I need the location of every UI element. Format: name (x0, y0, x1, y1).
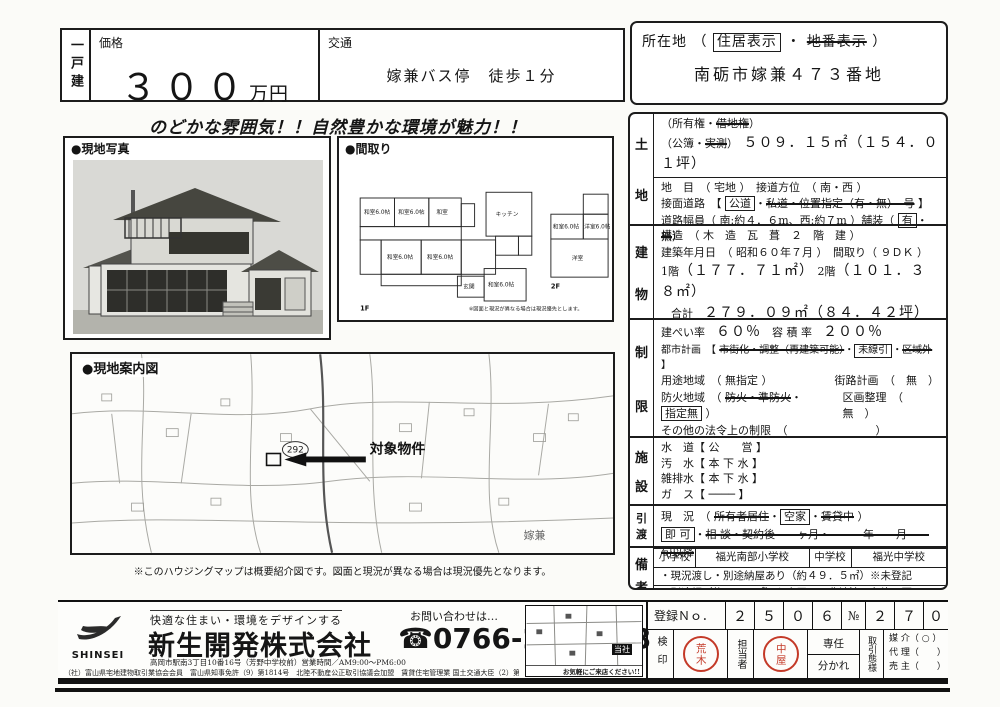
restrictions-header: 制 限 (630, 320, 654, 436)
restrictions-h1: 制 (635, 342, 648, 361)
handover-h2: 渡 (636, 526, 647, 542)
area-map-box: ●現地案内図 (70, 352, 615, 555)
facilities-h2: 設 (635, 476, 648, 495)
dairi-option: 代 理（ ） (889, 647, 946, 661)
company-logo: SHINSEI (66, 612, 130, 661)
city-plan-label: 都市計画 【 (661, 345, 716, 356)
timing-selected: 即 可 (661, 527, 695, 542)
status-selected: 空家 (780, 509, 810, 524)
facilities-section: 施 設 水 道【 公 営 】 汚 水【 本 下 水 】 雑排水【 本 下 水 】… (630, 436, 946, 504)
footer-band: SHINSEI 快適な住まい・環境をデザインする 新生開発株式会社 高岡市駅南3… (58, 600, 948, 684)
built-date: 建築年月日 （ 昭和６０年７月 ） 間取り（ ９ＤＫ ） (661, 245, 939, 262)
yoseki-label: 容 積 率 (772, 326, 812, 339)
transaction-type-label: 取引態様 (860, 630, 884, 678)
our-office-marker: 当社 (612, 644, 632, 655)
status-label: 現 況 （ (661, 510, 711, 523)
building-body: 構造 （ 木 造 瓦 葺 ２ 階 建 ） 建築年月日 （ 昭和６０年７月 ） 間… (654, 226, 946, 318)
elementary-school: 福光南部小学校 (696, 549, 810, 567)
transport-label: 交通 (328, 34, 615, 51)
land-category: 地 目 （ 宅地 ） (661, 181, 745, 194)
dot: ・ (844, 345, 854, 356)
room-label: 洋室 (572, 254, 584, 262)
yoseki-value: ２００％ (823, 324, 883, 340)
city-selected: 未線引 (854, 344, 892, 358)
dot: ・ (695, 528, 706, 541)
floorplan-box: ●間取り 和室6.0帖 和室6.0帖 和室 キッチン (337, 136, 614, 322)
location-address: 南砺市嫁兼４７３番地 (642, 61, 936, 85)
floor1-label: 1F (360, 305, 369, 313)
status-struck1: 所有者居住 (714, 510, 769, 523)
minimap-note: お気軽にご来店ください!! (526, 665, 642, 676)
building-section: 建 物 構造 （ 木 造 瓦 葺 ２ 階 建 ） 建築年月日 （ 昭和６０年７月… (630, 224, 946, 318)
room-label: キッチン (496, 211, 519, 218)
city-struck1: 市街化・調整（再建築可能） (719, 345, 844, 356)
exclusive-cell: 専任 分かれ (808, 630, 860, 678)
drainage: 雑排水【 本 下 水 】 (661, 471, 939, 487)
elementary-label: 小学校 (654, 549, 696, 567)
dot: ・ (791, 391, 802, 404)
staff-seal-cell: 中屋 (754, 630, 808, 678)
status-struck2: 賃貸中 (821, 510, 854, 523)
catchphrase: のどかな雰囲気！！自然豊かな環境が魅力！！ (60, 113, 616, 138)
room-label: 洋室6.0帖 (584, 223, 610, 231)
area-pre: （公簿・ (661, 137, 705, 150)
road-label: 接面道路 【 (661, 197, 722, 210)
handover-header: 引 渡 (630, 506, 654, 546)
registration-row: 登録Ｎｏ． ２ ５ ０ ６ № ２ ７ ０ (648, 602, 948, 630)
price-unit: 万円 (249, 83, 289, 105)
dot: ・ (810, 510, 821, 523)
reg-digit2: ７ (895, 602, 924, 629)
land-h1: 土 (635, 134, 648, 153)
dot: ・ (786, 34, 801, 50)
restrictions-section: 制 限 建ぺい率 ６０％ 容 積 率 ２００％ 都市計画 【 市街化・調整（再建… (630, 318, 946, 436)
room-label: 和室6.0帖 (488, 281, 515, 289)
area-map-label: ●現地案内図 (80, 358, 160, 377)
site-photo-label: ●現地写真 (71, 140, 323, 157)
handover-section: 引 渡 現 況 （ 所有者居住・空家・賃貸中 ） 即 可・相 談・契約後 ヶ月・… (630, 504, 946, 546)
remarks-h1: 備 (635, 554, 648, 573)
road-direction: 接道方位 （ 南・西 ） (756, 181, 868, 194)
remarks-h2: 考 (635, 577, 648, 590)
facilities-body: 水 道【 公 営 】 汚 水【 本 下 水 】 雑排水【 本 下 水 】 ガ ス… (654, 438, 946, 504)
kenin-text: 検印 (653, 636, 668, 672)
restrictions-h2: 限 (635, 396, 648, 415)
bracket: 】 (918, 197, 929, 210)
reg-digit2: ０ (924, 602, 948, 629)
inspection-seal-label: 検印 (648, 630, 674, 678)
no-label: № (842, 602, 866, 629)
location-opt-selected: 住居表示 (713, 33, 781, 52)
facilities-h1: 施 (635, 447, 648, 466)
area-struck: 実測 (705, 137, 727, 150)
reg-digit: ５ (755, 602, 784, 629)
land-area-block: （所有権・借地権） （公簿・実測） ５０９．１５㎡（１５４．０１坪） (654, 114, 946, 177)
room-label: 和室6.0帖 (387, 253, 414, 261)
phone-icon: ☎ (398, 622, 433, 655)
road-selected: 公道 (725, 196, 755, 211)
property-type-tab: 一戸建 (60, 28, 91, 102)
stamp-row: 検印 荒木 担当者 中屋 専任 分かれ 取引態様 媒 介（ ○ ） 代 理（ ）… (648, 630, 948, 678)
remark-note-1: ・現況渡し・別途納屋あり（約４９．５㎡）※未登記 (654, 568, 946, 585)
logo-text: SHINSEI (66, 650, 130, 661)
junior-high-school: 福光中学校 (852, 549, 946, 567)
floorplan-drawing: 和室6.0帖 和室6.0帖 和室 キッチン 和室6.0帖 和室6.0帖 玄関 和… (343, 158, 610, 320)
route-292-badge: 292 (287, 446, 304, 456)
road-struck: 私道・位置指定（有・無） 号 (766, 197, 915, 210)
baikai-option: 媒 介（ ○ ） (889, 633, 941, 647)
street-plan: 街路計画 （ 無 ） (835, 373, 940, 390)
room-label: 玄関 (463, 283, 475, 291)
floorplan-note: ※図面と現況が異なる場合は現況優先とします。 (469, 305, 583, 313)
fire-label: 防火地域 （ (661, 391, 722, 404)
room-label: 和室 (436, 208, 448, 216)
taiyo-text: 取引態様 (865, 636, 878, 672)
paren: （ (692, 34, 707, 50)
inspection-seal-cell: 荒木 (674, 630, 728, 678)
area-map-drawing: 292 対象物件 嫁兼 (72, 354, 613, 553)
ownership-post: ） (749, 117, 760, 130)
remark-note-2: ・別途畑（約１５０㎡）も売買可※農地法３条許可要 (654, 585, 946, 590)
dot: ・ (755, 197, 766, 210)
map-area-name: 嫁兼 (524, 528, 546, 542)
restrictions-body: 建ぺい率 ６０％ 容 積 率 ２００％ 都市計画 【 市街化・調整（再建築可能）… (654, 320, 946, 436)
fire-selected: 指定無 (661, 406, 702, 421)
sewage: 汚 水【 本 下 水 】 (661, 456, 939, 472)
location-options: 所在地 （ 住居表示 ・ 地番表示 ） (642, 31, 936, 52)
kenin-stamp: 荒木 (683, 636, 719, 672)
structure: 構造 （ 木 造 瓦 葺 ２ 階 建 ） (661, 228, 939, 245)
page-bottom-rule (55, 688, 950, 692)
remarks-body: 小学校 福光南部小学校 中学校 福光中学校 ・現況渡し・別途納屋あり（約４９．５… (654, 548, 946, 590)
location-label: 所在地 (642, 34, 687, 50)
junior-high-label: 中学校 (810, 549, 852, 567)
school-row: 小学校 福光南部小学校 中学校 福光中学校 (654, 548, 946, 568)
tanto-text: 担当者 (733, 639, 748, 669)
dot: ・ (769, 510, 780, 523)
house-photo (73, 160, 323, 334)
staff-label: 担当者 (728, 630, 754, 678)
room-label: 和室6.0帖 (398, 208, 425, 216)
dot: ・ (892, 345, 902, 356)
price-label: 価格 (99, 34, 310, 51)
spec-table: 土 地 （所有権・借地権） （公簿・実測） ５０９．１５㎡（１５４．０１坪） 地… (628, 112, 948, 590)
registration-table: 登録Ｎｏ． ２ ５ ０ ６ № ２ ７ ０ 検印 荒木 担当者 中屋 専任 分か… (646, 602, 948, 678)
f2-label: 2階 (818, 265, 836, 278)
urinushi-option: 売 主（ ） (889, 661, 946, 675)
office-address: 高岡市駅南3丁目10番16号（芳野中学校前）営業時間／AM9:00～PM6:00 (150, 657, 406, 668)
city-struck2: 区域外 (902, 345, 932, 356)
bracket: 】 (661, 360, 671, 371)
building-header: 建 物 (630, 226, 654, 318)
kenpei-value: ６０％ (716, 324, 761, 340)
reg-digit: ２ (726, 602, 755, 629)
tanto-stamp: 中屋 (763, 636, 799, 672)
store-minimap: 当社 お気軽にご来店ください!! (525, 605, 643, 677)
sennin-label: 専任 (808, 633, 859, 655)
map-note: ※このハウジングマップは概要紹介図です。図面と現況が異なる場合は現況優先となりま… (70, 563, 615, 578)
reg-no-label: 登録Ｎｏ． (648, 602, 726, 629)
zoning: 用途地域 （ 無指定 ） (661, 373, 773, 390)
land-header: 土 地 (630, 114, 654, 224)
location-opt-struck: 地番表示 (807, 34, 867, 50)
room-label: 和室6.0帖 (553, 223, 580, 231)
land-h2: 地 (635, 185, 648, 204)
building-h2: 物 (635, 284, 648, 303)
kenpei-label: 建ぺい率 (661, 326, 705, 339)
tanto-stamp-name: 中屋 (775, 643, 786, 666)
license-fine-print: （社）富山県宅地建物取引業協会会員 富山県知事免許（9）第1814号 北陸不動産… (64, 668, 519, 678)
area-post: ） (727, 137, 733, 150)
building-h1: 建 (635, 242, 648, 261)
price-number: ３００ (120, 66, 249, 109)
site-photo-box: ●現地写真 (63, 136, 331, 340)
transport-box: 交通 嫁兼バス停 徒歩１分 (318, 28, 625, 102)
listing-sheet: 一戸建 価格 ３００万円 交通 嫁兼バス停 徒歩１分 所在地 （ 住居表示 ・ … (0, 0, 1000, 707)
fire-struck: 防火・準防火 (725, 391, 791, 404)
handover-body: 現 況 （ 所有者居住・空家・賃貸中 ） 即 可・相 談・契約後 ヶ月・ 年 月… (654, 506, 946, 546)
transport-value: 嫁兼バス停 徒歩１分 (328, 65, 615, 86)
target-property-label: 対象物件 (369, 441, 426, 458)
handover-h1: 引 (636, 510, 647, 526)
wakare-label: 分かれ (808, 655, 859, 676)
floor2-label: 2F (551, 283, 560, 291)
gas: ガ ス【 ──── 】 (661, 487, 939, 503)
transaction-type-options: 媒 介（ ○ ） 代 理（ ） 売 主（ ） (884, 630, 948, 678)
reg-digit: ６ (813, 602, 842, 629)
ownership-struck: 借地権 (716, 117, 749, 130)
kenin-stamp-name: 荒木 (695, 643, 706, 666)
paren: ） (858, 510, 869, 523)
land-readjustment: 区画整理 （ 無 ） (842, 390, 939, 423)
shinsei-logo-icon (71, 612, 125, 646)
f1-area: （１７７．７１㎡） (679, 263, 814, 279)
room-label: 和室6.0帖 (427, 253, 454, 261)
room-label: 和室6.0帖 (364, 208, 391, 216)
paren: ） (706, 407, 717, 420)
land-section: 土 地 （所有権・借地権） （公簿・実測） ５０９．１５㎡（１５４．０１坪） 地… (630, 114, 946, 224)
facilities-header: 施 設 (630, 438, 654, 504)
paren: ） (872, 34, 887, 50)
remarks-section: 備 考 小学校 福光南部小学校 中学校 福光中学校 ・現況渡し・別途納屋あり（約… (630, 546, 946, 590)
water-supply: 水 道【 公 営 】 (661, 440, 939, 456)
reg-digit2: ２ (866, 602, 895, 629)
floorplan-label: ●間取り (345, 140, 606, 157)
f1-label: 1階 (661, 265, 679, 278)
ownership-pre: （所有権・ (661, 117, 716, 130)
location-box: 所在地 （ 住居表示 ・ 地番表示 ） 南砺市嫁兼４７３番地 (630, 21, 948, 105)
remarks-header: 備 考 (630, 548, 654, 590)
price-box: 価格 ３００万円 (89, 28, 320, 102)
price-value: ３００万円 (99, 57, 310, 111)
reg-digit: ０ (784, 602, 813, 629)
